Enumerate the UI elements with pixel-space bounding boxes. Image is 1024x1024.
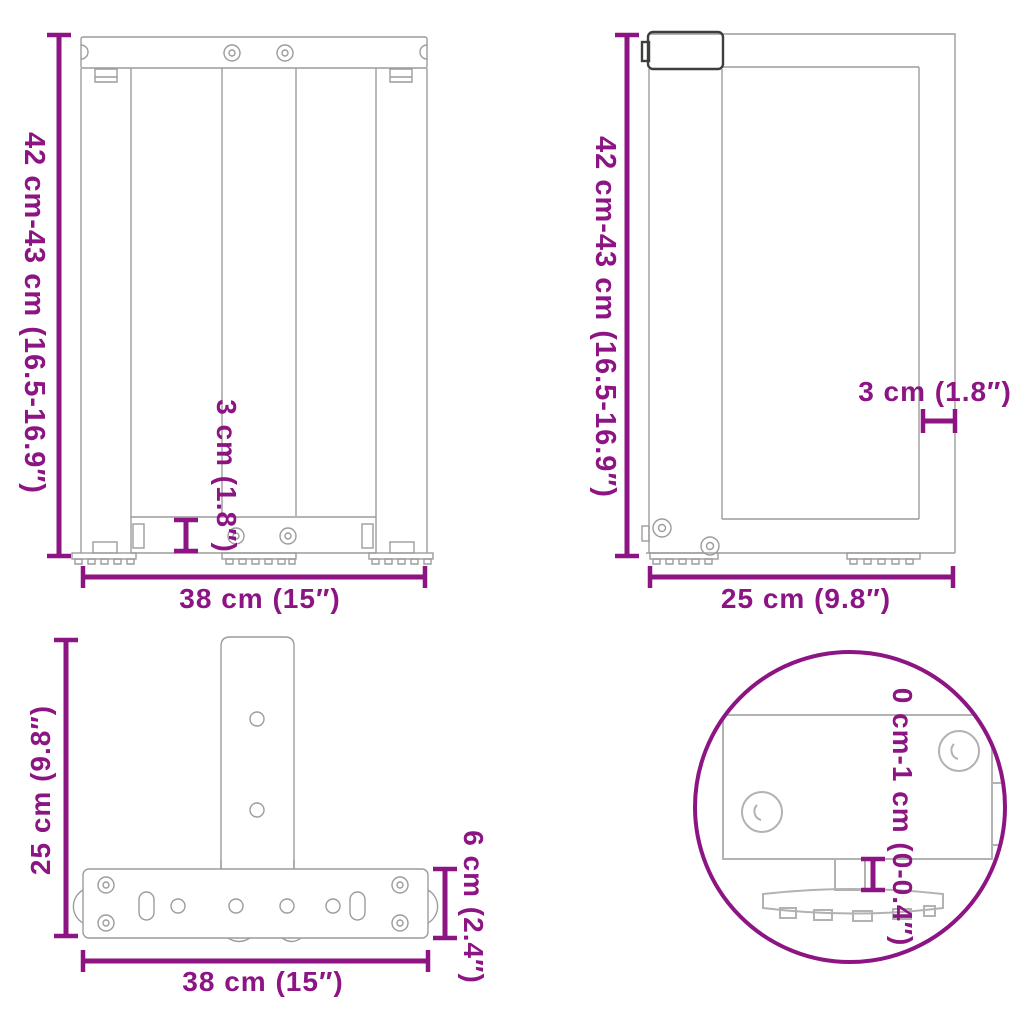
top-stem-plate: [221, 637, 294, 869]
side-post-label: 3 cm (1.8″): [858, 376, 1012, 407]
front-width-dimension: 38 cm (15″): [83, 566, 425, 614]
top-depth-dimension: 25 cm (9.8″): [25, 640, 78, 936]
top-plate-height-dimension: 6 cm (2.4″): [433, 830, 489, 984]
screw-icon: [280, 528, 296, 544]
screw-icon: [701, 537, 719, 555]
screw-icon: [224, 45, 240, 61]
side-view-drawing: [642, 32, 955, 564]
mounting-bracket: [648, 32, 723, 69]
top-right-foot-bump: [428, 890, 438, 923]
top-base-bar: [83, 869, 428, 938]
side-bottom-tab: [642, 526, 649, 541]
front-top-plate: [81, 37, 427, 68]
front-width-label: 38 cm (15″): [179, 583, 340, 614]
adjustable-foot: [847, 553, 920, 564]
front-left-hook: [95, 69, 117, 82]
screw-icon: [98, 915, 114, 931]
foot-detail-figure: 0 cm-1 cm (0-0.4″): [695, 652, 1006, 962]
top-view-figure: 25 cm (9.8″) 6 cm (2.4″) 38 cm (15″): [25, 637, 489, 997]
screw-icon: [277, 45, 293, 61]
screw-icon: [653, 519, 671, 537]
detail-leg-plate: [723, 715, 992, 859]
mounting-bracket-tab: [642, 42, 649, 61]
side-depth-dimension: 25 cm (9.8″): [650, 566, 953, 614]
front-leg-columns: [81, 68, 427, 553]
side-height-label: 42 cm-43 cm (16.5-16.9″): [589, 136, 621, 498]
side-depth-label: 25 cm (9.8″): [721, 583, 891, 614]
top-plate-height-label: 6 cm (2.4″): [458, 830, 489, 984]
side-view-figure: 42 cm-43 cm (16.5-16.9″) 3 cm (1.8″) 25 …: [589, 32, 1012, 614]
front-crossbar: [131, 517, 376, 553]
front-height-label: 42 cm-43 cm (16.5-16.9″): [18, 132, 50, 494]
top-left-foot-bump: [73, 890, 83, 923]
adjustable-foot: [222, 553, 296, 564]
side-outer-contour: [646, 34, 955, 553]
side-inner-contour: [722, 67, 919, 519]
front-height-dimension: 42 cm-43 cm (16.5-16.9″): [18, 35, 71, 556]
screw-icon: [98, 877, 114, 893]
top-width-dimension: 38 cm (15″): [83, 950, 428, 997]
top-depth-label: 25 cm (9.8″): [25, 705, 56, 875]
top-view-drawing: [73, 637, 437, 942]
side-height-dimension: 42 cm-43 cm (16.5-16.9″): [589, 35, 639, 556]
screw-icon: [392, 877, 408, 893]
side-post-dimension: 3 cm (1.8″): [858, 376, 1012, 433]
front-crossbar-right-latch: [362, 524, 373, 548]
screw-icon: [392, 915, 408, 931]
front-right-hook: [390, 69, 412, 82]
foot-adjustment-label: 0 cm-1 cm (0-0.4″): [887, 688, 918, 947]
front-crossbar-dimension: 3 cm (1.8″): [174, 399, 242, 553]
top-width-label: 38 cm (15″): [182, 966, 343, 997]
front-view-figure: 42 cm-43 cm (16.5-16.9″) 3 cm (1.8″) 38 …: [18, 35, 433, 614]
diagram-canvas: 42 cm-43 cm (16.5-16.9″) 3 cm (1.8″) 38 …: [0, 0, 1024, 1024]
table-leg-dimension-diagram: 42 cm-43 cm (16.5-16.9″) 3 cm (1.8″) 38 …: [0, 0, 1024, 1024]
front-view-drawing: [72, 37, 433, 564]
adjustable-foot: [369, 542, 433, 564]
front-crossbar-left-latch: [133, 524, 144, 548]
front-crossbar-label: 3 cm (1.8″): [211, 399, 242, 553]
